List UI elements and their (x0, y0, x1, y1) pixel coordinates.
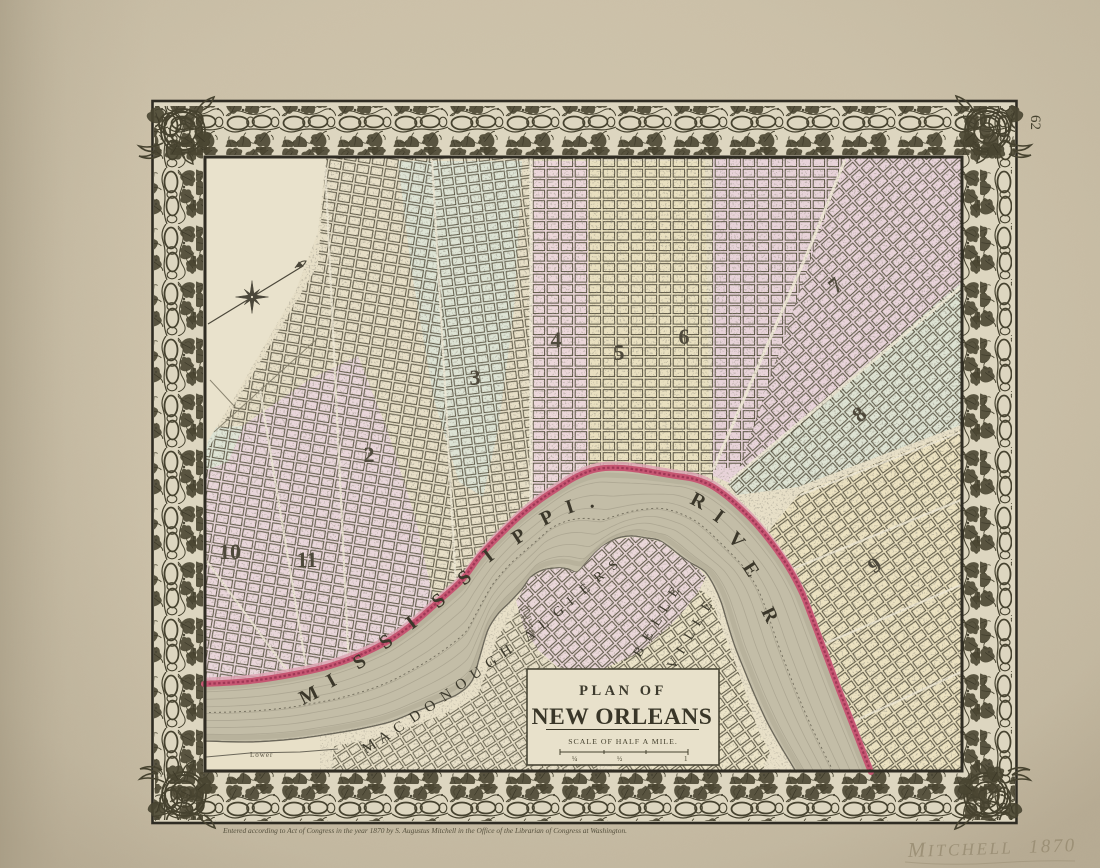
svg-text:62: 62 (1027, 115, 1043, 130)
svg-text:2: 2 (364, 442, 375, 467)
svg-text:SCALE OF HALF A MILE.: SCALE OF HALF A MILE. (568, 737, 678, 746)
svg-text:3: 3 (470, 365, 481, 390)
svg-text:Entered according to Act of Co: Entered according to Act of Congress in … (222, 827, 627, 835)
svg-text:PLAN OF: PLAN OF (579, 683, 667, 699)
svg-text:6: 6 (679, 324, 690, 349)
svg-text:Lower: Lower (250, 751, 273, 759)
svg-text:1: 1 (684, 755, 688, 763)
svg-text:NEW ORLEANS: NEW ORLEANS (532, 704, 713, 730)
svg-text:11: 11 (297, 547, 318, 572)
svg-text:4: 4 (551, 327, 562, 352)
svg-text:½: ½ (617, 755, 622, 763)
svg-text:¼: ¼ (572, 755, 577, 763)
svg-text:5: 5 (614, 340, 625, 365)
svg-text:10: 10 (219, 539, 241, 564)
